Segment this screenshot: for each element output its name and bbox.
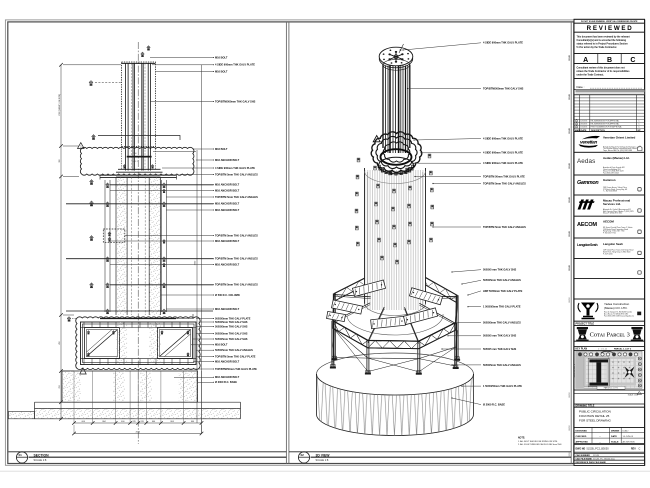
svg-text:PARCEL 1, LOT 2: PARCEL 1, LOT 2 [614,347,632,350]
svg-text:50/50/5mm THK GALV ANGLES: 50/50/5mm THK GALV ANGLES [215,348,253,352]
svg-text:300: 300 [59,158,61,162]
svg-text:3D VIEW: 3D VIEW [316,453,331,457]
svg-text:TOP/BTM 5mm THK GALV PLATE: TOP/BTM 5mm THK GALV PLATE [215,354,256,358]
svg-text:Hong Kong T: 852 2317 7700: Hong Kong T: 852 2317 7700 [603,231,624,233]
svg-text:KEY PLAN: KEY PLAN [576,347,588,350]
svg-text:F. 2576 0416: F. 2576 0416 [603,253,613,255]
svg-text:B5050: B5050 [569,297,571,302]
svg-text:02: 02 [301,453,305,457]
svg-text:50/50/5mm THK GALV SHS: 50/50/5mm THK GALV SHS [215,337,248,341]
svg-text:RE-SUBMISSION FOR APPROVAL: RE-SUBMISSION FOR APPROVAL [591,122,620,125]
svg-text:50/50/5 mm THK GALV SHS: 50/50/5 mm THK GALV SHS [483,334,517,338]
svg-text:TOP/BTM 50mm THK GALV PLATE: TOP/BTM 50mm THK GALV PLATE [483,174,525,178]
svg-text:REFERENCE DWG FILE NAME: REFERENCE DWG FILE NAME [576,461,607,464]
svg-text:M16 BOLT: M16 BOLT [215,55,228,59]
svg-text:S-PL 2: S-PL 2 [132,161,137,163]
svg-text:TOP/BTM 5mm THK GALV ANGLES: TOP/BTM 5mm THK GALV ANGLES [215,257,258,261]
svg-text:TOP/BTM/50mm THK GALV PLATE: TOP/BTM/50mm THK GALV PLATE [215,367,257,371]
svg-text:TOP/BTM/500mm THK GALV SHS: TOP/BTM/500mm THK GALV SHS [483,86,524,90]
svg-text:FOUNTAIN DETAIL 25: FOUNTAIN DETAIL 25 [579,414,610,418]
svg-text:5152B: 5152B [569,128,571,134]
svg-text:370: 370 [141,421,145,423]
svg-text:SCALE 1:8: SCALE 1:8 [34,458,47,462]
svg-text:SECTION: SECTION [34,453,50,457]
svg-text:PUBLIC CIRCULATION: PUBLIC CIRCULATION [579,410,611,414]
svg-text:5152B: 5152B [569,231,571,237]
svg-text:50/50/5mm THK GALV SHS: 50/50/5mm THK GALV SHS [215,332,248,336]
svg-text:REV: REV [631,449,636,451]
svg-text:1 50/50/50mm THK GALV PLATE: 1 50/50/50mm THK GALV PLATE [483,384,522,388]
svg-text:600: 600 [152,421,156,423]
svg-text:Aedas: Aedas [577,158,595,165]
svg-text:DO NOT SCALE DRAWING. VERIFY A: DO NOT SCALE DRAWING. VERIFY ALL DIMENSI… [581,20,638,23]
svg-text:B5050: B5050 [569,392,571,397]
svg-text:Aedas (Macau) Ltd.: Aedas (Macau) Ltd. [603,156,630,160]
svg-text:370: 370 [132,421,136,423]
svg-text:Services Ltd.: Services Ltd. [603,202,621,206]
svg-text:TOP/BTM 5mm THK GALV ANGLES: TOP/BTM 5mm THK GALV ANGLES [215,172,258,176]
svg-text:Fax: (853) 2870 1083 macau@ya: Fax: (853) 2870 1083 macau@yadea.mo [604,316,634,318]
svg-text:Fax: (853) 2871 5624: Fax: (853) 2871 5624 [603,173,619,175]
svg-text:Macau F. (853) 2875 3310: Macau F. (853) 2875 3310 [603,213,622,215]
svg-text:DRAWN: DRAWN [611,430,620,433]
svg-text:50/50/5 mm THK GALV SHS: 50/50/5 mm THK GALV SHS [483,347,517,351]
svg-text:1 50/50/5mm THK GALV PLATE: 1 50/50/5mm THK GALV PLATE [483,305,521,309]
svg-text:DWG NO: DWG NO [576,449,586,451]
svg-text:C: C [630,57,635,64]
svg-text:5152B: 5152B [569,94,571,100]
svg-text:50/50/5mm THK GALV SHS: 50/50/5mm THK GALV SHS [215,320,248,324]
svg-text:864: 864 [102,421,106,423]
svg-text:5152B: 5152B [569,265,571,271]
svg-text:R E V I E W E D: R E V I E W E D [587,25,633,32]
svg-text:M16 ANCHOR BOLT: M16 ANCHOR BOLT [215,375,240,379]
svg-text:4 SIDE 900mm THK GALV PLATE: 4 SIDE 900mm THK GALV PLATE [483,41,523,45]
svg-text:Venetian Orient Limited: Venetian Orient Limited [603,135,636,139]
svg-text:M16 ANCHOR BOLT: M16 ANCHOR BOLT [215,262,240,266]
svg-text:2. ALL FILLET WELDED SHOULD BE: 2. ALL FILLET WELDED SHOULD BE 3mm THK. [518,443,562,446]
svg-text:venetian: venetian [580,139,597,145]
svg-text:Langdon Seah: Langdon Seah [603,242,623,246]
svg-text:50/50/5mm THK GALV PLATE: 50/50/5mm THK GALV PLATE [215,316,251,320]
svg-text:relieve the Trade Contractor o: relieve the Trade Contractor of its resp… [577,70,631,73]
svg-text:Ø 2000 R.C. BASE: Ø 2000 R.C. BASE [483,403,505,407]
svg-text:4 SIDE 900mm THK GALV PLATE: 4 SIDE 900mm THK GALV PLATE [215,63,255,67]
svg-text:28/F Devon House, Taikoo Place: 28/F Devon House, Taikoo Place [603,187,627,189]
svg-text:CHECKED: CHECKED [576,436,587,438]
svg-text:450: 450 [59,340,61,344]
svg-text:status referred to in Project: status referred to in Project Procedures… [577,43,629,46]
svg-text:C: C [639,448,641,451]
svg-text:2554: 2554 [136,431,141,433]
svg-text:Date :: Date : [577,85,585,89]
svg-text:26/08/05: 26/08/05 [580,123,587,125]
svg-text:50/50/5mm THK GALV ANGLES: 50/50/5mm THK GALV ANGLES [483,321,521,325]
svg-text:TOP/BTM 5mm THK GALV ANGLES: TOP/BTM 5mm THK GALV ANGLES [215,195,258,199]
svg-text:Consultant(s)(s) and is accord: Consultant(s)(s) and is accorded the fol… [577,39,627,42]
svg-text:M16 BOLT: M16 BOLT [215,147,228,151]
svg-text:B: B [607,57,612,64]
svg-text:A: A [583,57,588,64]
svg-text:PARCEL 2, LOT 1: PARCEL 2, LOT 1 [604,387,618,390]
svg-text:M16 ANCHOR BOLT: M16 ANCHOR BOLT [215,202,240,206]
svg-text:TOP/BTM 5mm THK GALV ANGLES: TOP/BTM 5mm THK GALV ANGLES [483,225,526,229]
svg-text:Ø 500 R.C. COLUMN: Ø 500 R.C. COLUMN [215,293,240,297]
svg-text:M16 ANCHOR BOLT: M16 ANCHOR BOLT [215,158,240,162]
svg-text:1788 (VERIFY ON SITE): 1788 (VERIFY ON SITE) [59,94,61,116]
svg-text:762: 762 [59,384,61,388]
svg-text:M16 ANCHOR BOLT: M16 ANCHOR BOLT [215,188,240,192]
svg-text:M16 ANCHOR BOLT: M16 ANCHOR BOLT [215,183,240,187]
svg-text:AECOM: AECOM [577,222,597,228]
svg-text:China Law Building 21/F: China Law Building 21/F [603,169,621,171]
svg-text:FOR STEEL DRAWING: FOR STEEL DRAWING [579,418,611,422]
svg-text:Ø 2000 R.C. BASE: Ø 2000 R.C. BASE [215,380,237,384]
svg-text:4 SIDE 900mm THK GALV PLATE: 4 SIDE 900mm THK GALV PLATE [483,136,523,140]
svg-text:M16 ANCHOR BOLT: M16 ANCHOR BOLT [215,307,240,311]
svg-text:DESIGNED: DESIGNED [576,431,588,433]
svg-text:Gammon: Gammon [603,178,616,182]
svg-text:HDP 50/50mm THK GALV PLATE: HDP 50/50mm THK GALV PLATE [483,289,523,293]
svg-text:5152B_PC2_B5050: 5152B_PC2_B5050 [587,448,610,451]
svg-text:864: 864 [171,421,175,423]
svg-text:TOP/BTM 5mm THK GALV ANGLES: TOP/BTM 5mm THK GALV ANGLES [215,233,258,237]
svg-text:600: 600 [191,421,195,423]
svg-text:01: 01 [19,453,23,457]
svg-text:M16 ANCHOR BOLT: M16 ANCHOR BOLT [215,359,240,363]
svg-text:600: 600 [121,421,125,423]
svg-text:AECOM: AECOM [603,219,614,223]
svg-text:4 SIDE 900mm THK GALV PLATE: 4 SIDE 900mm THK GALV PLATE [483,151,523,155]
svg-text:RE-SUBMISSION FOR APPROVAL: RE-SUBMISSION FOR APPROVAL [591,119,620,122]
svg-text:SCALE: SCALE [611,440,619,443]
svg-text:(Macau) CO. LTD.: (Macau) CO. LTD. [604,306,628,310]
svg-text:Macau Tel: (853) 2871 5623: Macau Tel: (853) 2871 5623 [603,171,623,173]
svg-text:2: 2 [576,123,577,125]
svg-text:50/50/5mm THK GALV ANGLES: 50/50/5mm THK GALV ANGLES [483,363,521,367]
svg-text:1. ALL BOLT SHOULD BE FIXING O: 1. ALL BOLT SHOULD BE FIXING ON SITE. [518,440,558,443]
svg-text:M16 BOLT: M16 BOLT [215,343,228,347]
svg-text:50/50/5mm THK GALV SHS: 50/50/5mm THK GALV SHS [215,325,248,329]
svg-text:50/50/5 mm THK GALV SHS: 50/50/5 mm THK GALV SHS [483,268,517,272]
svg-text:15/08/05: 15/08/05 [580,126,587,128]
svg-text:B5050: B5050 [569,425,571,430]
svg-text:50/50/5mm THK GALV ANGLES: 50/50/5mm THK GALV ANGLES [483,278,521,282]
svg-text:AS SHOWN: AS SHOWN [623,440,635,443]
svg-text:LangdonSeah: LangdonSeah [577,243,598,247]
svg-text:600: 600 [82,421,86,423]
svg-text:14-JUN-05: 14-JUN-05 [623,436,634,438]
svg-text:APPROVED: APPROVED [576,440,589,443]
svg-text:TOP/BTM 5mm THK GALV ANGLES: TOP/BTM 5mm THK GALV ANGLES [215,283,258,287]
svg-text:1: 1 [576,126,577,128]
svg-text:4 SIDE 900mm THK GALV PLATE: 4 SIDE 900mm THK GALV PLATE [483,161,523,165]
svg-text:M16 BOLT: M16 BOLT [215,69,228,73]
svg-text:SCALE 1:500: SCALE 1:500 [628,394,638,397]
svg-text:TOP/BTM 5mm THK GALV ANGLES: TOP/BTM 5mm THK GALV ANGLES [483,181,526,185]
svg-text:SCALE 1:8: SCALE 1:8 [316,458,329,462]
svg-text:Cᴏᴛᴀɪ Pᴀʀᴄᴇʟ 3: Cᴏᴛᴀɪ Pᴀʀᴄᴇʟ 3 [590,331,630,338]
svg-text:M16 ANCHOR BOLT: M16 ANCHOR BOLT [215,208,240,212]
svg-text:NOTE:: NOTE: [518,438,525,440]
svg-text:DJAO: DJAO [623,430,629,433]
svg-text:150: 150 [134,153,137,155]
svg-text:3: 3 [576,120,577,122]
svg-text:This document has been reviewe: This document has been reviewed by the r… [577,35,630,38]
svg-text:FIRST SUBMISSION FOR APPROVAL: FIRST SUBMISSION FOR APPROVAL [591,125,622,128]
svg-text:DATE: DATE [611,435,617,438]
svg-text:M16 ANCHOR BOLT: M16 ANCHOR BOLT [215,239,240,243]
svg-text:12/09/05: 12/09/05 [580,120,587,122]
svg-text:Consultant review of this docu: Consultant review of this document does … [577,66,625,69]
svg-text:5152B: 5152B [569,163,571,169]
svg-text:4 SIDE 900mm THK GALV PLATE: 4 SIDE 900mm THK GALV PLATE [215,166,255,170]
svg-text:TOP/BTM/500mm THK GALV SHS: TOP/BTM/500mm THK GALV SHS [215,99,256,103]
svg-text:5.4 for action by the Trade Co: 5.4 for action by the Trade Contractor. [577,46,618,49]
svg-text:5152B: 5152B [569,197,571,203]
svg-text:5152B: 5152B [569,55,571,61]
svg-text:PARCEL 1, LOT 1: PARCEL 1, LOT 1 [573,364,576,378]
svg-text:Gammon: Gammon [577,180,599,186]
svg-text:B5050: B5050 [569,452,571,457]
svg-text:under the Trade Contract.: under the Trade Contract. [577,74,605,77]
svg-text:T + 852 2516 8823: T + 852 2516 8823 [603,191,617,193]
svg-text:F: 852 2317 7701: F: 852 2317 7701 [603,233,616,235]
